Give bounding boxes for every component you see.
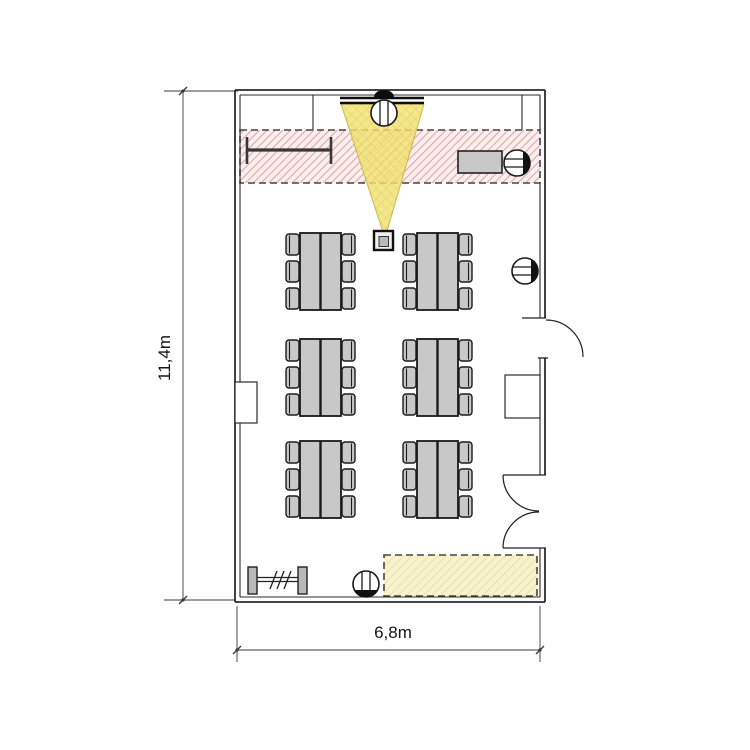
chair: [342, 340, 355, 361]
chair: [342, 234, 355, 255]
chair: [403, 442, 416, 463]
chair: [403, 234, 416, 255]
chair: [342, 394, 355, 415]
chair: [459, 234, 472, 255]
chair: [286, 394, 299, 415]
room-height-label: 11,4m: [155, 335, 174, 381]
wash-basin-top-right: [504, 150, 530, 176]
wash-basin-rear: [353, 571, 379, 597]
chair: [286, 340, 299, 361]
chair: [403, 261, 416, 282]
ceiling-projector: [374, 231, 393, 250]
chair: [459, 367, 472, 388]
floor-plan-canvas: 11,4m 6,8m: [0, 0, 750, 750]
wall-recess: [505, 375, 540, 418]
floor-plan-drawing: 11,4m 6,8m: [0, 0, 750, 750]
pilaster: [235, 382, 257, 423]
chair: [403, 340, 416, 361]
chair: [459, 394, 472, 415]
chair: [342, 367, 355, 388]
chair: [403, 394, 416, 415]
wash-basin-front: [371, 100, 397, 126]
chair: [286, 469, 299, 490]
chair: [342, 261, 355, 282]
table-group: [286, 339, 355, 416]
chair: [286, 288, 299, 309]
chair: [459, 261, 472, 282]
chair: [459, 442, 472, 463]
chair: [459, 469, 472, 490]
chair: [403, 367, 416, 388]
wash-basin-mid-right: [512, 258, 538, 284]
storage-zone: [384, 555, 537, 596]
chair: [459, 288, 472, 309]
chair: [342, 496, 355, 517]
chair: [286, 442, 299, 463]
chair: [403, 288, 416, 309]
chair: [403, 496, 416, 517]
room-width-label: 6,8m: [374, 623, 412, 642]
chair: [403, 469, 416, 490]
table-group: [403, 339, 472, 416]
chair: [342, 288, 355, 309]
chair: [342, 469, 355, 490]
cabinet: [458, 151, 502, 173]
table-group: [286, 233, 355, 310]
table-group: [286, 441, 355, 518]
chair: [286, 496, 299, 517]
chair: [286, 261, 299, 282]
chair: [286, 234, 299, 255]
chair: [286, 367, 299, 388]
table-group: [403, 233, 472, 310]
table-group: [403, 441, 472, 518]
chair: [342, 442, 355, 463]
chair: [459, 340, 472, 361]
chair: [459, 496, 472, 517]
